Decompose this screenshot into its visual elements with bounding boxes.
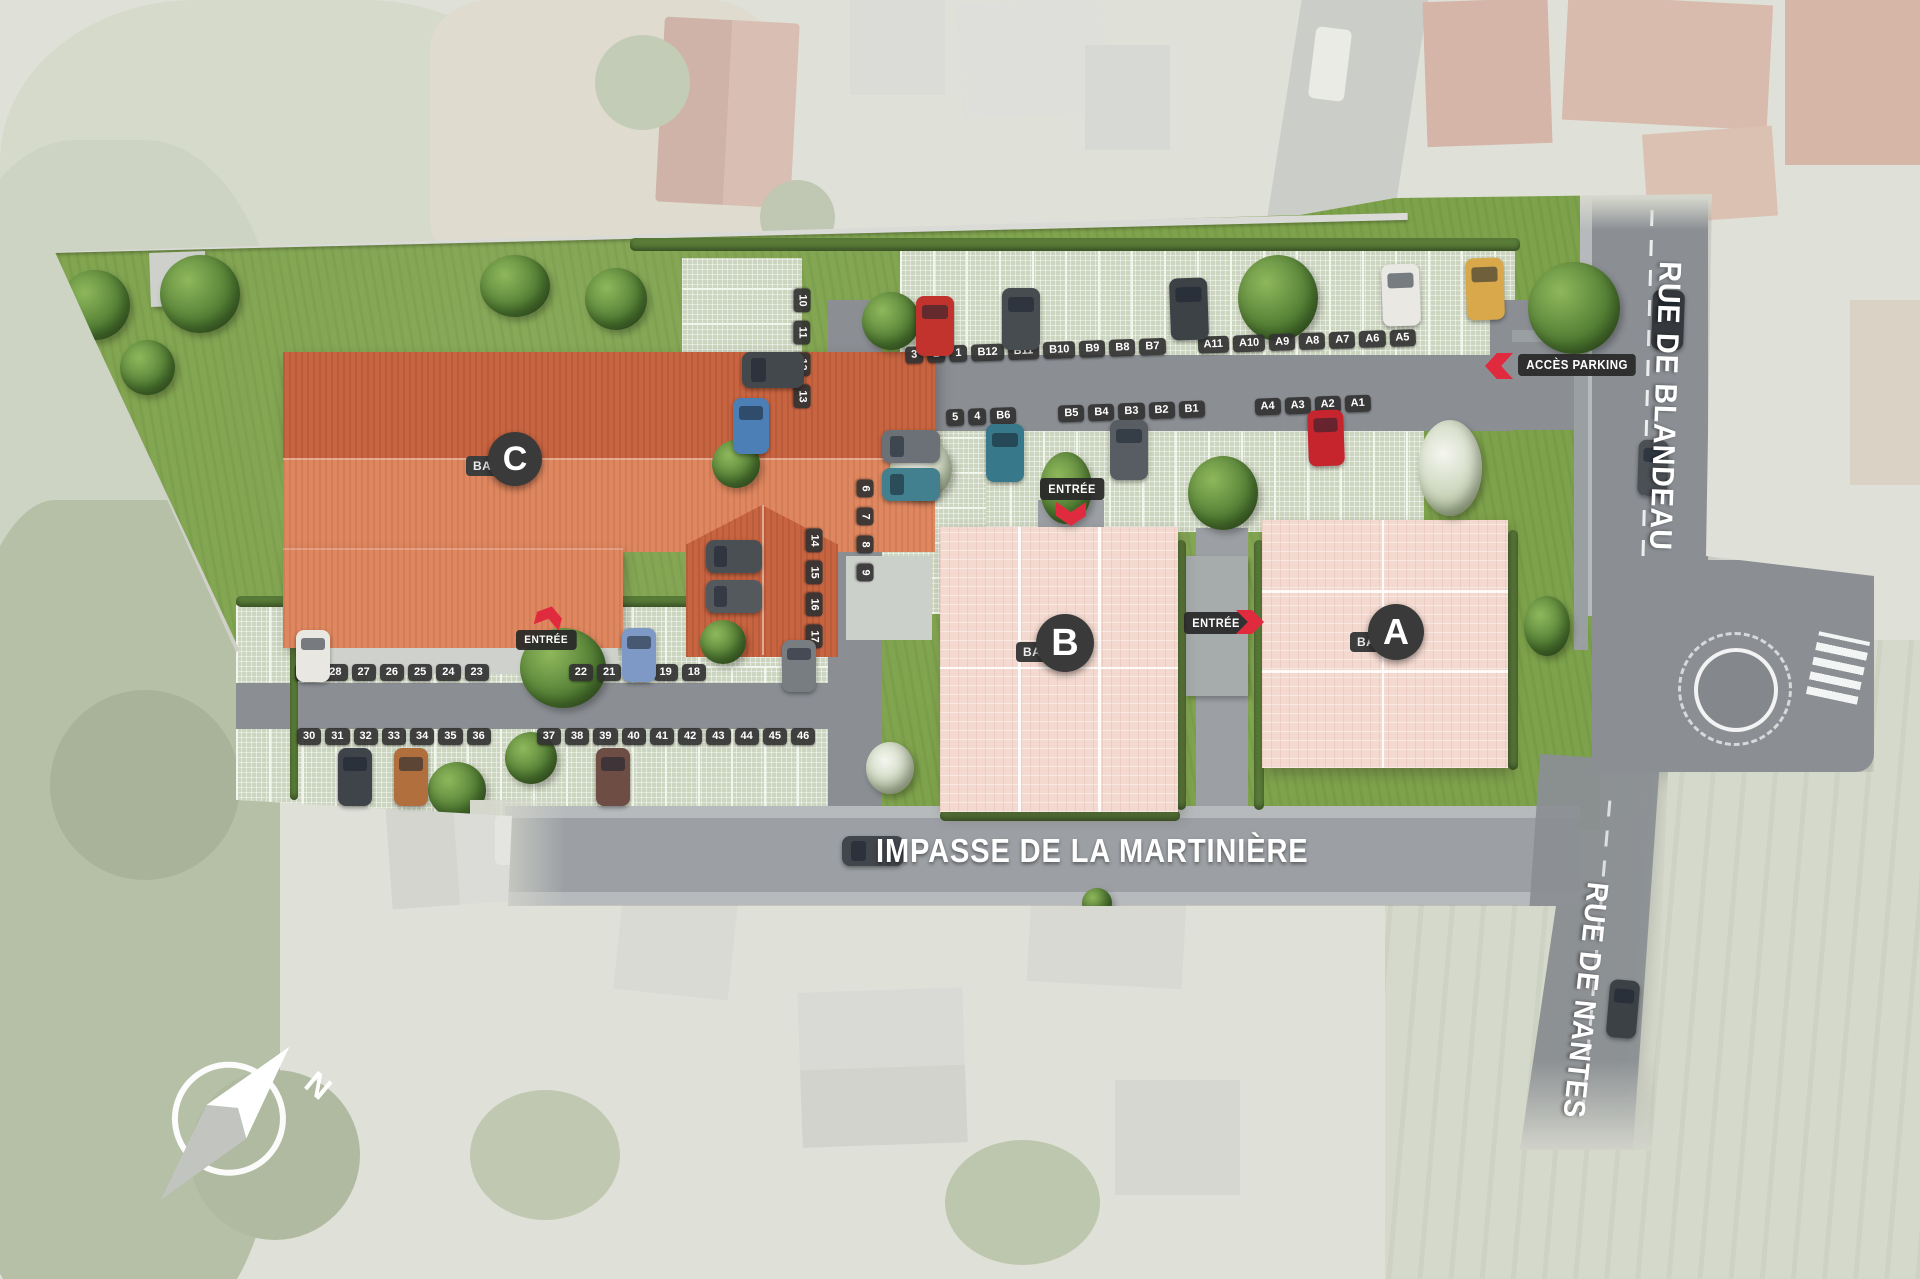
parking-spot-label: 41 bbox=[650, 728, 674, 745]
parking-spot-label: 18 bbox=[682, 664, 706, 681]
tree bbox=[1188, 456, 1258, 530]
parking-spot-label: A8 bbox=[1299, 332, 1326, 350]
parking-spot-label: B7 bbox=[1139, 338, 1166, 356]
retaining-wall bbox=[1574, 330, 1588, 650]
parking-spot-label: 36 bbox=[467, 728, 491, 745]
tree bbox=[585, 268, 647, 330]
car bbox=[916, 296, 954, 356]
parking-spot-label: 44 bbox=[735, 728, 759, 745]
tree bbox=[428, 762, 486, 818]
parking-spot-label: 25 bbox=[408, 664, 432, 681]
parking-spot-label: 31 bbox=[325, 728, 349, 745]
parking-row-west-bottom: 30 31 32 33 34 35 36 37 38 39 40 41 42 4… bbox=[297, 728, 815, 745]
parking-spot-label: 16 bbox=[806, 592, 823, 616]
parking-spot-label: 21 bbox=[597, 664, 621, 681]
parking-spot-label: 4 bbox=[968, 408, 987, 426]
tree bbox=[862, 292, 920, 350]
tree bbox=[1528, 262, 1620, 354]
parking-spot-label: 7 bbox=[857, 507, 874, 525]
parking-spot-label: 8 bbox=[857, 535, 874, 553]
car bbox=[596, 748, 630, 806]
parking-spot-label: B1 bbox=[1178, 400, 1205, 418]
car bbox=[1169, 277, 1209, 340]
parking-spot-label: 23 bbox=[465, 664, 489, 681]
parking-spot-label: 40 bbox=[622, 728, 646, 745]
parking-spot-label: 14 bbox=[806, 528, 823, 552]
parking-spot-label: A4 bbox=[1254, 398, 1281, 416]
building-c-roof-upper bbox=[283, 352, 935, 460]
car bbox=[1381, 263, 1421, 326]
tree bbox=[700, 620, 746, 664]
parking-spot-label: 26 bbox=[380, 664, 404, 681]
parking-spot-label: 32 bbox=[354, 728, 378, 745]
parking-spot-label: A6 bbox=[1359, 330, 1386, 348]
building-b-letter: B bbox=[1051, 622, 1078, 665]
tree bbox=[120, 340, 175, 395]
sidewalk bbox=[505, 892, 1580, 905]
parking-spot-label: 38 bbox=[565, 728, 589, 745]
parking-spot-label: A10 bbox=[1233, 334, 1266, 352]
compass-north-label: N bbox=[298, 1064, 339, 1106]
entrance-label-c: ENTRÉE bbox=[516, 630, 576, 650]
parking-spot-label: B9 bbox=[1079, 340, 1106, 358]
parking-spot-label: B4 bbox=[1088, 404, 1115, 422]
car bbox=[1606, 979, 1641, 1039]
parking-spot-label: 35 bbox=[438, 728, 462, 745]
building-c-letter: C bbox=[503, 440, 528, 479]
car bbox=[1002, 288, 1040, 350]
car bbox=[1465, 257, 1505, 320]
car bbox=[706, 580, 762, 613]
parking-spot-label: 5 bbox=[946, 409, 965, 427]
parking-spot-label: 10 bbox=[794, 288, 811, 312]
car bbox=[733, 398, 769, 454]
roundabout-give-way-ring bbox=[1678, 632, 1792, 746]
parking-spot-label: B8 bbox=[1109, 339, 1136, 357]
parking-col-lane-left-upper: 10 11 12 13 bbox=[790, 292, 814, 405]
parking-col-lane-left-lower: 14 15 16 17 bbox=[802, 532, 826, 645]
car bbox=[1110, 420, 1148, 480]
tree bbox=[160, 255, 240, 333]
parking-spot-label: B3 bbox=[1118, 402, 1145, 420]
car bbox=[986, 424, 1024, 482]
hedge bbox=[630, 238, 1520, 251]
parking-spot-label: 24 bbox=[436, 664, 460, 681]
parking-spot-label: A5 bbox=[1389, 329, 1416, 347]
tree bbox=[480, 255, 550, 317]
car bbox=[706, 540, 762, 573]
car bbox=[338, 748, 372, 806]
building-a-letter: A bbox=[1383, 611, 1409, 653]
parking-spot-label: 30 bbox=[297, 728, 321, 745]
entrance-label-a: ENTRÉE bbox=[1184, 612, 1248, 634]
building-b-marker: B bbox=[1036, 614, 1094, 672]
car bbox=[742, 352, 804, 388]
building-c-roof-mid bbox=[283, 458, 935, 552]
parking-access-label: ACCÈS PARKING bbox=[1518, 354, 1636, 376]
tree bbox=[1238, 255, 1318, 341]
building-c-ridge bbox=[762, 505, 764, 655]
parking-spot-label: 43 bbox=[706, 728, 730, 745]
parking-spot-label: A9 bbox=[1269, 333, 1296, 351]
parking-spot-label: 39 bbox=[593, 728, 617, 745]
car bbox=[622, 628, 656, 682]
tree bbox=[1524, 596, 1570, 656]
parking-spot-label: 9 bbox=[857, 563, 874, 581]
parking-spot-label: 6 bbox=[857, 479, 874, 497]
car bbox=[882, 430, 940, 463]
car bbox=[296, 630, 330, 682]
street-name-impasse-martiniere: IMPASSE DE LA MARTINIÈRE bbox=[876, 832, 1309, 870]
hedge bbox=[1508, 530, 1518, 770]
building-a-marker: A bbox=[1368, 604, 1424, 660]
car bbox=[782, 640, 816, 692]
flowering-tree bbox=[866, 742, 914, 794]
parking-spot-label: 42 bbox=[678, 728, 702, 745]
parking-spot-label: B6 bbox=[990, 407, 1017, 425]
parking-spot-label: 19 bbox=[654, 664, 678, 681]
parking-spot-label: A1 bbox=[1344, 395, 1371, 413]
parking-spot-label: 27 bbox=[352, 664, 376, 681]
parking-spot-label: 15 bbox=[806, 560, 823, 584]
parking-spot-label: A7 bbox=[1329, 331, 1356, 349]
parking-spot-label: B2 bbox=[1148, 401, 1175, 419]
site-plan-screenshot: 3 2 1 B12 B11 B10 B9 B8 B7 A11 A10 A9 A8… bbox=[0, 0, 1920, 1279]
parking-spot-label: B5 bbox=[1058, 405, 1085, 423]
car bbox=[1307, 409, 1345, 466]
parking-spot-label: 13 bbox=[794, 384, 811, 408]
car bbox=[394, 748, 428, 806]
parking-spot-label: 46 bbox=[791, 728, 815, 745]
parking-spot-label: 37 bbox=[537, 728, 561, 745]
building-c-marker: C bbox=[488, 432, 542, 486]
parking-spot-label: 34 bbox=[410, 728, 434, 745]
parking-spot-label: 33 bbox=[382, 728, 406, 745]
car bbox=[882, 468, 940, 501]
parking-col-lane-right: 6 7 8 9 bbox=[856, 480, 874, 581]
parking-spot-label: 22 bbox=[569, 664, 593, 681]
parking-spot-label: B10 bbox=[1043, 341, 1076, 359]
parking-spot-label: 45 bbox=[763, 728, 787, 745]
flowering-tree bbox=[1418, 420, 1482, 516]
parking-spot-label: B12 bbox=[971, 343, 1004, 361]
parking-spot-label: A3 bbox=[1284, 397, 1311, 415]
parking-spot-label: 11 bbox=[794, 321, 811, 345]
entrance-label-b: ENTRÉE bbox=[1040, 478, 1104, 500]
